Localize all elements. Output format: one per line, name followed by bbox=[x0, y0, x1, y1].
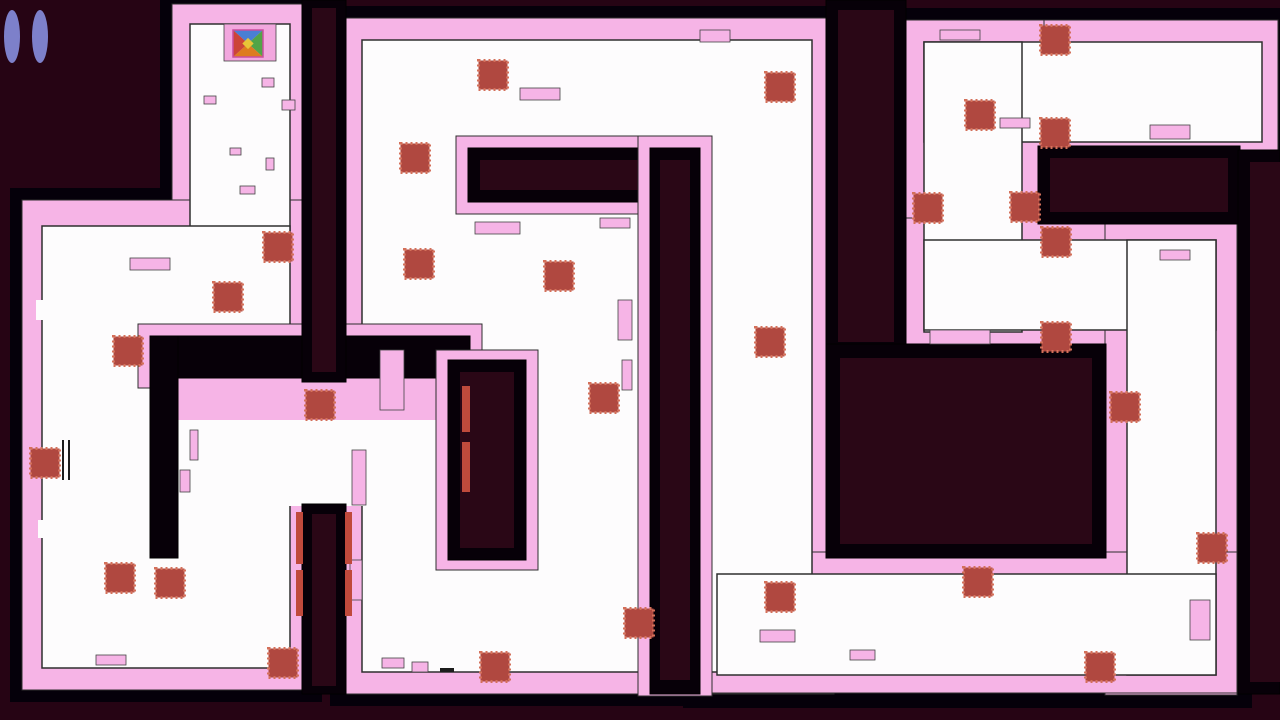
noise-artifact bbox=[96, 655, 126, 665]
wall-damage-strip bbox=[345, 512, 352, 564]
collectible-square bbox=[114, 337, 143, 366]
noise-artifact bbox=[520, 88, 560, 100]
collectible-square bbox=[766, 73, 795, 102]
pause-button[interactable] bbox=[4, 8, 56, 64]
collectible-square bbox=[214, 283, 243, 312]
noise-artifact bbox=[190, 430, 198, 460]
collectible-square bbox=[481, 653, 510, 682]
noise-artifact bbox=[380, 350, 404, 410]
noise-artifact bbox=[210, 124, 215, 133]
noise-artifact bbox=[618, 300, 632, 340]
noise-artifact bbox=[262, 78, 274, 87]
wall-damage-strip bbox=[462, 442, 470, 492]
maze-wall-core bbox=[1250, 162, 1280, 682]
noise-artifact bbox=[382, 658, 404, 668]
collectible-square bbox=[1041, 119, 1070, 148]
maze-wall-rect bbox=[150, 336, 178, 558]
collectible-square bbox=[1086, 653, 1115, 682]
collectible-square bbox=[306, 391, 335, 420]
player-icon[interactable] bbox=[233, 30, 263, 57]
noise-artifact bbox=[1150, 125, 1190, 139]
collectible-square bbox=[756, 328, 785, 357]
maze-canvas[interactable] bbox=[0, 0, 1280, 720]
noise-artifact bbox=[440, 668, 454, 672]
maze-wall-core bbox=[840, 358, 1092, 544]
noise-artifact bbox=[1190, 600, 1210, 640]
noise-artifact bbox=[700, 30, 730, 42]
noise-artifact bbox=[240, 186, 255, 194]
noise-artifact bbox=[36, 300, 43, 320]
collectible-square bbox=[966, 101, 995, 130]
maze-wall-core bbox=[1050, 158, 1228, 212]
noise-artifact bbox=[352, 450, 366, 505]
noise-artifact bbox=[412, 662, 428, 672]
wall-damage-strip bbox=[345, 570, 352, 616]
noise-artifact bbox=[930, 330, 990, 344]
noise-artifact bbox=[140, 618, 147, 632]
noise-artifact bbox=[130, 258, 170, 270]
noise-artifact bbox=[600, 218, 630, 228]
collectible-square bbox=[31, 449, 60, 478]
collectible-square bbox=[766, 583, 795, 612]
collectible-square bbox=[964, 568, 993, 597]
noise-artifact bbox=[204, 96, 216, 104]
collectible-square bbox=[405, 250, 434, 279]
noise-artifact bbox=[475, 222, 520, 234]
maze-wall-core bbox=[312, 8, 336, 372]
noise-artifact bbox=[196, 128, 203, 144]
maze-floor-rect bbox=[178, 420, 464, 506]
noise-artifact bbox=[38, 520, 46, 538]
collectible-square bbox=[269, 649, 298, 678]
collectible-square bbox=[1198, 534, 1227, 563]
maze-wall-core bbox=[312, 514, 336, 686]
collectible-square bbox=[1011, 193, 1040, 222]
collectible-square bbox=[106, 564, 135, 593]
collectible-square bbox=[1041, 26, 1070, 55]
noise-artifact bbox=[208, 42, 216, 56]
noise-artifact bbox=[940, 30, 980, 40]
noise-artifact bbox=[220, 68, 226, 78]
collectible-square bbox=[264, 233, 293, 262]
maze-wall-core bbox=[838, 10, 894, 342]
noise-artifact bbox=[60, 410, 66, 426]
collectible-square bbox=[545, 262, 574, 291]
collectible-square bbox=[914, 194, 943, 223]
collectible-square bbox=[625, 609, 654, 638]
collectible-square bbox=[1042, 228, 1071, 257]
maze-wall-core bbox=[660, 160, 690, 680]
pause-bar-icon bbox=[4, 10, 20, 63]
collectible-square bbox=[479, 61, 508, 90]
collectible-square bbox=[156, 569, 185, 598]
noise-artifact bbox=[230, 148, 241, 155]
noise-artifact bbox=[62, 440, 64, 480]
noise-artifact bbox=[180, 470, 190, 492]
noise-artifact bbox=[282, 100, 295, 110]
collectible-square bbox=[401, 144, 430, 173]
noise-artifact bbox=[1000, 118, 1030, 128]
pause-bar-icon bbox=[32, 10, 48, 63]
noise-artifact bbox=[760, 630, 795, 642]
noise-artifact bbox=[622, 360, 632, 390]
wall-damage-strip bbox=[462, 386, 470, 432]
noise-artifact bbox=[850, 650, 875, 660]
collectible-square bbox=[1042, 323, 1071, 352]
collectible-square bbox=[1111, 393, 1140, 422]
noise-artifact bbox=[266, 158, 274, 170]
game-stage bbox=[0, 0, 1280, 720]
wall-damage-strip bbox=[296, 512, 303, 564]
wall-damage-strip bbox=[296, 570, 303, 616]
noise-artifact bbox=[68, 440, 70, 480]
noise-artifact bbox=[1160, 250, 1190, 260]
collectible-square bbox=[590, 384, 619, 413]
